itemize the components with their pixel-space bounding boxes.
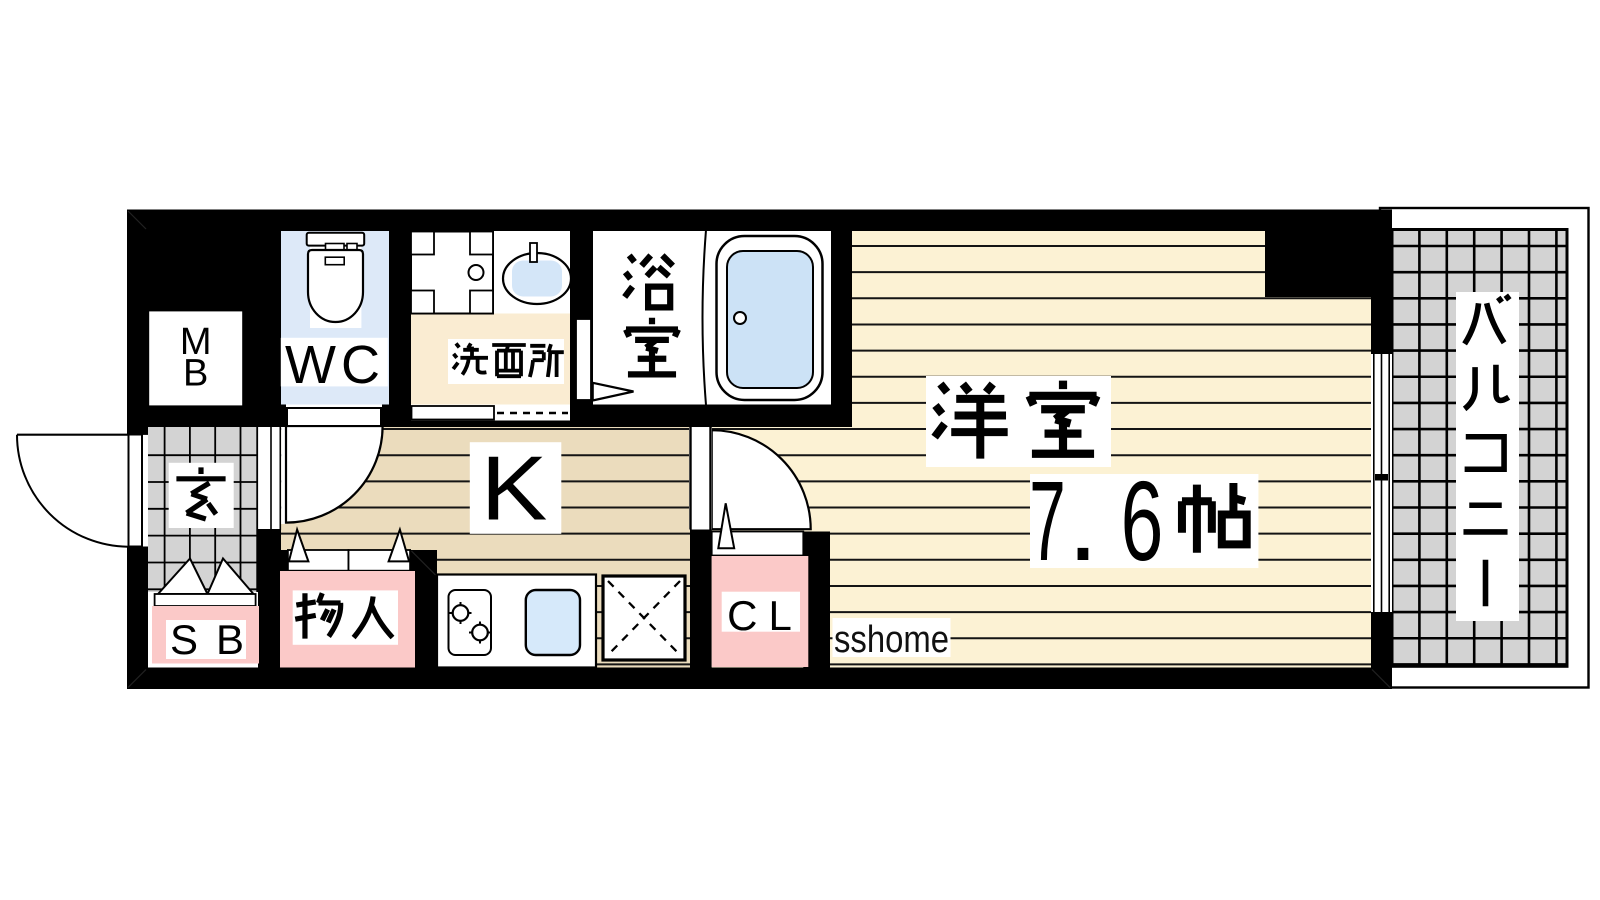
svg-text:SB: SB [170,616,262,663]
svg-text:.: . [1067,458,1098,584]
svg-text:sshome: sshome [834,619,949,661]
svg-text:CL: CL [727,592,803,639]
svg-text:WC: WC [285,335,385,395]
svg-text:K: K [481,438,548,540]
svg-text:6: 6 [1121,459,1164,584]
svg-text:7: 7 [1029,457,1065,584]
svg-text:B: B [183,353,208,395]
